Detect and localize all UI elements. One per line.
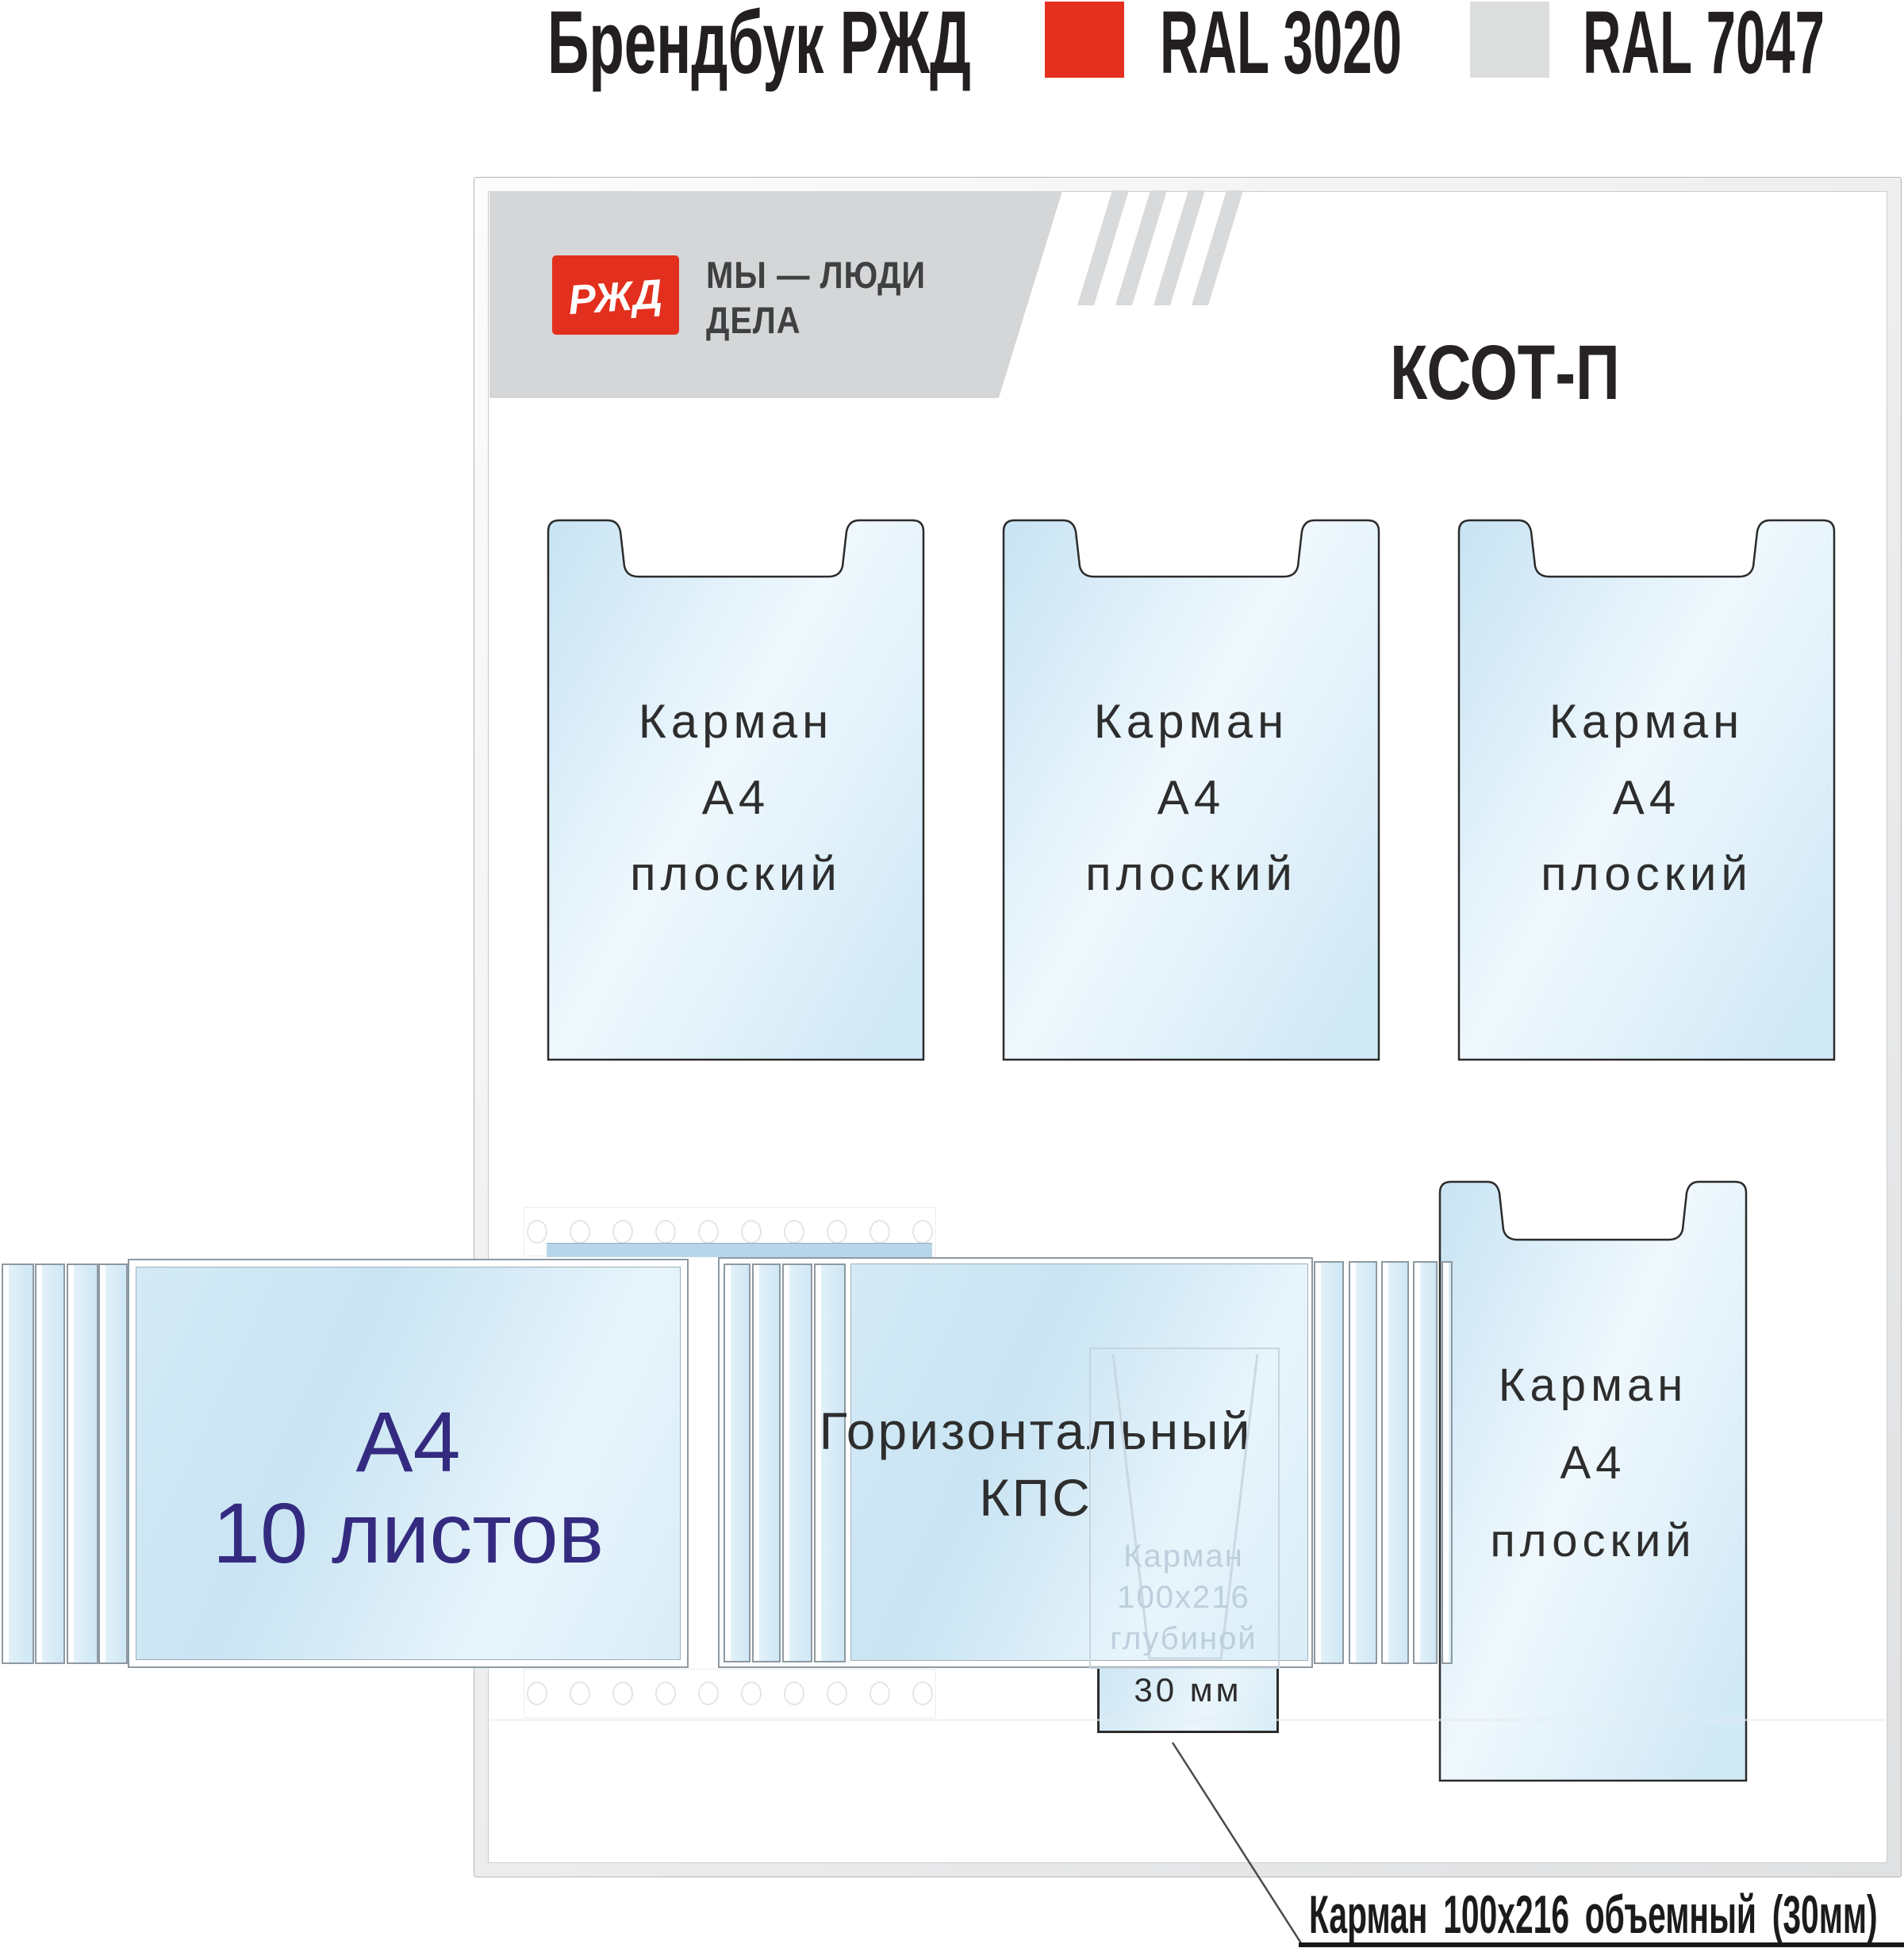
pocket-behind-edge <box>547 1243 932 1257</box>
callout-line <box>1166 1737 1325 1948</box>
pocket-label-line: плоский <box>1438 1502 1748 1580</box>
pocket-label-line: А4 <box>547 760 925 836</box>
stand-title: КСОТ-П <box>1390 333 1677 412</box>
shelf-line <box>489 1719 1886 1721</box>
pocket-label-line: Карман <box>547 684 925 760</box>
ghost-label-line: глубиной <box>1088 1618 1279 1659</box>
flip-page-edge <box>98 1264 128 1664</box>
swatch-ral-7047 <box>1470 2 1549 78</box>
rzd-logo-text: РЖД <box>566 271 663 324</box>
rzd-logo-icon: РЖД <box>552 255 679 335</box>
pocket-label-line: Карман <box>1002 684 1380 760</box>
pocket-label: Карман А4 плоский <box>1002 684 1380 912</box>
hole-icon <box>612 1681 633 1705</box>
flip-page-edge <box>1314 1261 1344 1664</box>
ghost-label-line: Карман <box>1088 1536 1279 1577</box>
hole-icon <box>869 1681 890 1705</box>
flip-page-edge <box>1441 1261 1453 1664</box>
pocket-label-line: плоский <box>547 836 925 912</box>
hole-icon <box>827 1220 847 1244</box>
slogan-line-2: ДЕЛА <box>706 297 926 343</box>
hole-icon <box>655 1681 676 1705</box>
pocket-label-line: Карман <box>1438 1347 1748 1425</box>
flip-page-edge <box>67 1264 98 1664</box>
pocket-100x216-deep: 30 мм <box>1097 1668 1279 1733</box>
hole-icon <box>698 1681 719 1705</box>
callout-label: Карман 100х216 объемный (30мм) <box>1309 1889 1904 1940</box>
ghost-label-line: 100x216 <box>1088 1577 1279 1618</box>
small-pocket-visible-label: 30 мм <box>1100 1671 1276 1709</box>
pocket-a4-flat-1: Карман А4 плоский <box>547 519 925 1061</box>
hole-icon <box>912 1681 933 1705</box>
hole-icon <box>869 1220 890 1244</box>
pocket-label-line: А4 <box>1457 760 1836 836</box>
hole-icon <box>741 1220 762 1244</box>
hole-icon <box>612 1220 633 1244</box>
hole-icon <box>527 1681 547 1705</box>
hole-icon <box>655 1220 676 1244</box>
flip-page-edge <box>752 1264 781 1662</box>
flip-page-edge <box>1413 1261 1438 1664</box>
pocket-a4-flat-2: Карман А4 плоский <box>1002 519 1380 1061</box>
pocket-label: Карман А4 плоский <box>1457 684 1836 912</box>
diagonal-stripes-decoration <box>1031 190 1285 306</box>
hole-icon <box>698 1220 719 1244</box>
flip-page-edge <box>1349 1261 1377 1664</box>
flip-page-edge <box>1381 1261 1409 1664</box>
hole-icon <box>784 1681 804 1705</box>
swatch-ral-3020 <box>1045 2 1124 78</box>
brandbook-page: РЖД МЫ — ЛЮДИ ДЕЛА КСОТ-П Карман А4 плос… <box>0 0 1904 1948</box>
pocket-label-line: плоский <box>1457 836 1836 912</box>
hole-icon <box>827 1681 847 1705</box>
pocket-label-line: А4 <box>1002 760 1380 836</box>
pocket-label-line: Карман <box>1457 684 1836 760</box>
rzd-logo: РЖД <box>552 255 679 335</box>
flip-page-edge <box>35 1264 65 1664</box>
pocket-label: Карман А4 плоский <box>547 684 925 912</box>
flip-mount-plate-bottom <box>524 1669 936 1718</box>
flip-panel-a4-page: А4 10 листов <box>136 1267 681 1660</box>
flip-page-edge <box>724 1264 750 1662</box>
swatch-ral-7047-label: RAL 7047 <box>1583 0 1904 86</box>
slogan-line-1: МЫ — ЛЮДИ <box>706 252 926 297</box>
flip-a4-label: А4 10 листов <box>136 1396 680 1578</box>
pocket-label-line: А4 <box>1438 1425 1748 1502</box>
pocket-label-line: плоский <box>1002 836 1380 912</box>
slogan: МЫ — ЛЮДИ ДЕЛА <box>706 252 926 343</box>
ghost-pocket-label: Карман 100x216 глубиной <box>1088 1536 1279 1659</box>
pocket-a4-flat-3: Карман А4 плоский <box>1457 519 1836 1061</box>
pocket-label: Карман А4 плоский <box>1438 1347 1748 1580</box>
hole-icon <box>527 1220 547 1244</box>
flip-page-edge <box>2 1264 34 1664</box>
callout-underline <box>1299 1942 1904 1947</box>
pocket-a4-flat-4: Карман А4 плоский <box>1438 1180 1748 1782</box>
hole-icon <box>570 1681 590 1705</box>
hole-icon <box>741 1681 762 1705</box>
flip-panel-a4: А4 10 листов <box>128 1259 689 1668</box>
hole-icon <box>912 1220 933 1244</box>
flip-a4-line-1: А4 <box>136 1396 680 1487</box>
hole-icon <box>570 1220 590 1244</box>
flip-a4-line-2: 10 листов <box>136 1487 680 1578</box>
hole-icon <box>784 1220 804 1244</box>
